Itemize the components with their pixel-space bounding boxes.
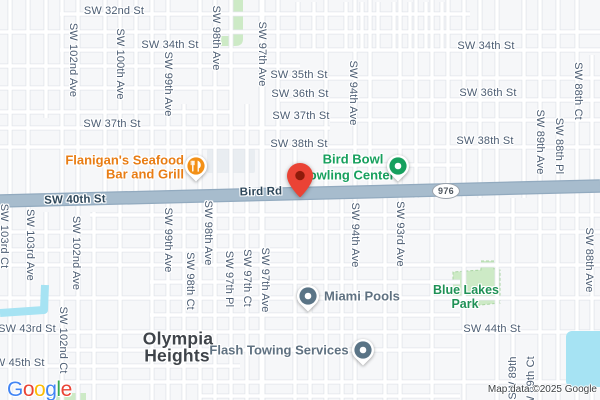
google-logo-letter: e [61,378,72,400]
bird-bowl-bowling-center-label[interactable]: Bird Bowl [323,152,384,167]
flanigans-seafood-bar-and-grill-label[interactable]: Bar and Grill [106,167,184,182]
route-shield-976: 976 [432,183,460,199]
destination-pin-icon [287,163,313,197]
bird-bowl-bowling-center-label[interactable]: Bowling Center [299,168,394,183]
google-logo[interactable]: Google [7,378,72,400]
flash-towing-services-marker[interactable] [352,339,374,366]
destination-pin[interactable] [287,163,313,202]
map-attribution: Map data ©2025 Google [488,384,597,395]
miami-pools-marker[interactable] [297,285,319,312]
google-logo-letter: o [23,378,34,400]
bird-bowl-bowling-center-marker[interactable] [387,155,409,182]
google-logo-letter: g [45,378,56,400]
route-shield-number: 976 [438,186,454,196]
flanigans-seafood-bar-and-grill-marker[interactable] [185,155,207,182]
flash-towing-services-label[interactable]: Flash Towing Services [209,343,348,358]
miami-pools-label[interactable]: Miami Pools [324,289,400,304]
water-lake [566,331,600,387]
flanigans-seafood-bar-and-grill-label[interactable]: Flanigan's Seafood [65,153,184,168]
google-logo-letter: G [7,378,23,400]
google-logo-letter: o [34,378,45,400]
map-canvas[interactable]: SW 32nd StSW 34th StSW 34th StSW 35th St… [0,0,600,400]
